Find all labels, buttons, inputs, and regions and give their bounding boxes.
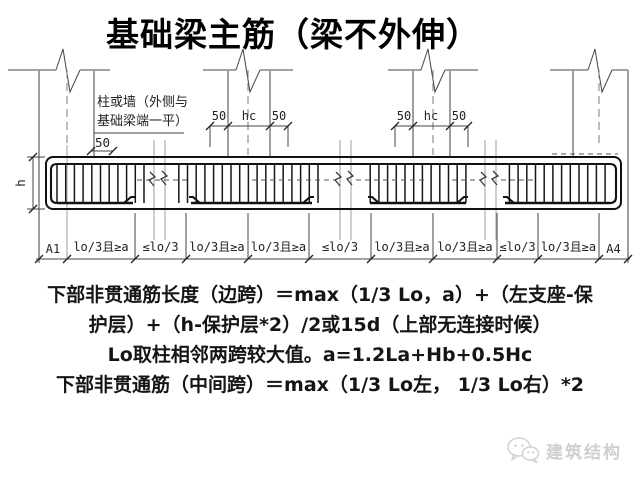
dim-label: lo/3且≥a	[73, 240, 128, 254]
dim-label: lo/3且≥a	[251, 240, 306, 254]
col3-dim-hc: hc	[424, 109, 438, 123]
column-note-line2: 基础梁端一平）	[97, 114, 188, 129]
col2-dim-right: 50	[272, 109, 286, 123]
column2-dimension: 50 hc 50	[210, 109, 288, 147]
notes-block: 下部非贯通筋长度（边跨）＝max（1/3 Lo，a）+（左支座-保 护层）+（h…	[0, 280, 640, 400]
dim-label: lo/3且≥a	[541, 240, 596, 254]
dim-label: lo/3且≥a	[189, 240, 244, 254]
left-cover-dim-label: 50	[95, 135, 110, 150]
beam-height-dimension: h	[13, 153, 45, 213]
column3-dimension: 50 hc 50	[395, 109, 468, 147]
dim-label: lo/3且≥a	[437, 240, 492, 254]
stirrups	[57, 164, 605, 203]
note-line-4: 下部非贯通筋（中间跨）＝max（1/3 Lo左， 1/3 Lo右）*2	[0, 370, 640, 400]
bottom-dimension: A1lo/3且≥a≤lo/3lo/3且≥alo/3且≥a≤lo/3lo/3且≥a…	[35, 122, 632, 263]
beam-height-label: h	[13, 179, 28, 187]
beam-break-symbols	[149, 171, 498, 186]
dim-label: lo/3且≥a	[374, 240, 429, 254]
col3-dim-left: 50	[397, 109, 411, 123]
watermark: 建筑结构	[506, 436, 622, 464]
note-line-2: 护层）+（h-保护层*2）/2或15d（上部无连接时候）	[0, 310, 640, 340]
dim-label: ≤lo/3	[322, 240, 358, 254]
note-line-3: Lo取柱相邻两跨较大值。a=1.2La+Hb+0.5Hc	[0, 340, 640, 370]
watermark-label: 建筑结构	[546, 438, 622, 463]
column-note-line1: 柱或墙（外侧与	[97, 95, 188, 110]
beam-diagram: 柱或墙（外侧与 基础梁端一平） 50 50 hc 50 50 hc 50	[0, 46, 640, 274]
note-line-1: 下部非贯通筋长度（边跨）＝max（1/3 Lo，a）+（左支座-保	[0, 280, 640, 310]
dim-label: A1	[46, 242, 60, 256]
column-wall-note: 柱或墙（外侧与 基础梁端一平） 50	[87, 95, 188, 155]
col3-dim-right: 50	[452, 109, 466, 123]
column-top-breaks	[8, 49, 628, 92]
dim-label: A4	[606, 242, 620, 256]
dim-label: ≤lo/3	[499, 240, 535, 254]
wechat-icon	[506, 436, 540, 464]
dim-label: ≤lo/3	[142, 240, 178, 254]
dimension-labels: A1lo/3且≥a≤lo/3lo/3且≥alo/3且≥a≤lo/3lo/3且≥a…	[46, 240, 621, 256]
col2-dim-left: 50	[212, 109, 226, 123]
slide: 基础梁主筋（梁不外伸）	[0, 0, 640, 480]
col2-dim-hc: hc	[242, 109, 256, 123]
